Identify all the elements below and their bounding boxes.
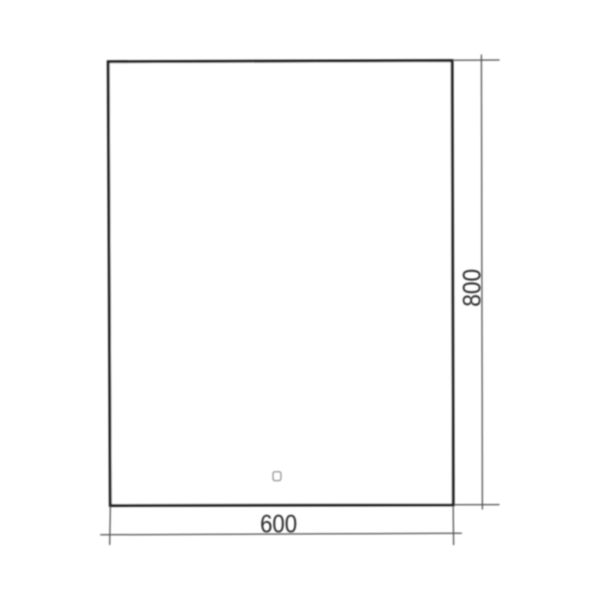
- svg-text:800: 800: [458, 269, 486, 307]
- svg-text:600: 600: [260, 511, 297, 539]
